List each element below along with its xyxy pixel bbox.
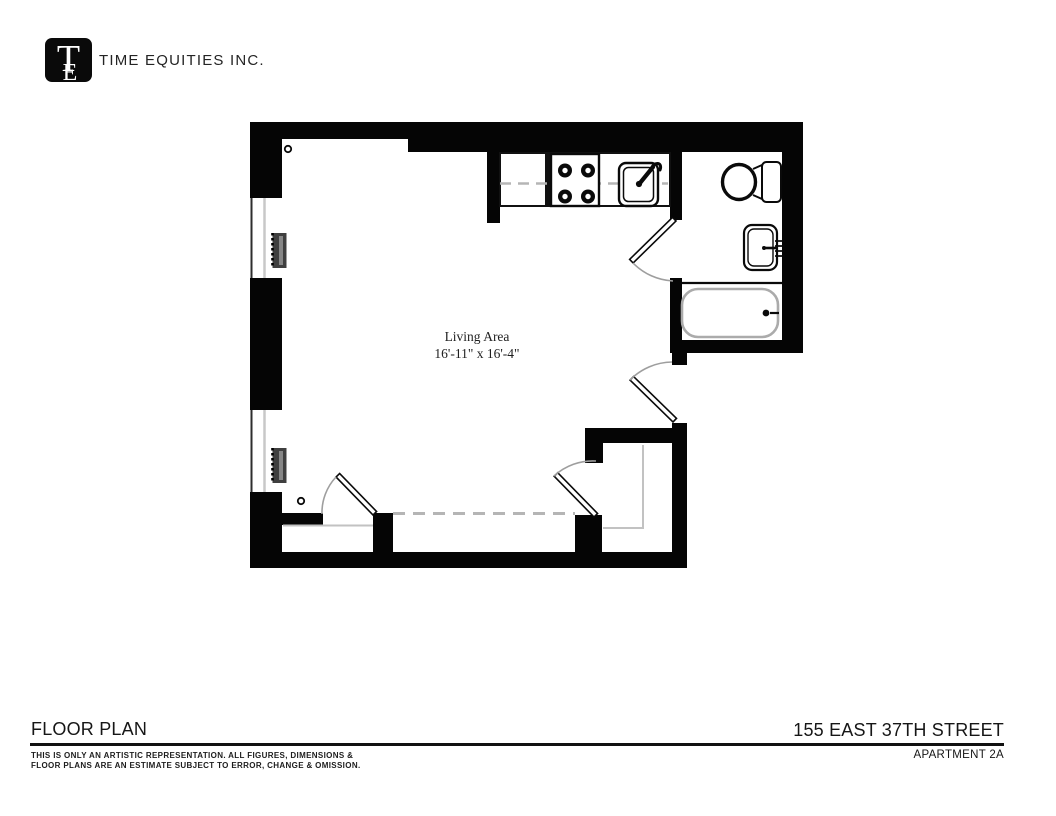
closet-right-interior-line [603, 445, 643, 528]
entry-door-arc [630, 362, 672, 380]
toilet-tank [762, 162, 781, 202]
bathroom-sink [744, 225, 785, 270]
disclaimer-line-2: FLOOR PLANS ARE AN ESTIMATE SUBJECT TO E… [31, 761, 361, 771]
wall-closet-left-pillar [373, 513, 393, 558]
entry-door-leaf [630, 377, 676, 422]
wall-left-upper [250, 122, 282, 198]
kitchen [500, 153, 670, 206]
bathroom-door-leaf [630, 217, 676, 263]
burner-center [585, 194, 590, 199]
disclaimer-line-1: THIS IS ONLY AN ARTISTIC REPRESENTATION.… [31, 751, 361, 761]
room-label: Living Area [445, 329, 510, 344]
kitchen-sink [619, 163, 661, 206]
closet-left-door-arc [322, 477, 336, 514]
closet-right-door-arc [554, 461, 596, 476]
toilet-hinge [753, 195, 762, 199]
wall-closet-right-top [585, 428, 673, 443]
footer-divider-rule [30, 743, 1004, 746]
wall-closet-right-pillar [575, 515, 602, 557]
toilet [723, 162, 782, 202]
burner-center [585, 168, 590, 173]
stove [551, 154, 599, 206]
wall-entry-right [672, 423, 687, 568]
doors [322, 217, 677, 517]
wall-bathroom-left-upper [670, 148, 682, 220]
faucet-base [636, 181, 642, 187]
riser-circle-top [285, 146, 291, 152]
walls [250, 122, 803, 568]
wall-closet-left-jamb [278, 513, 323, 525]
bathroom-door-arc [633, 263, 673, 281]
burner-center [562, 194, 567, 199]
toilet-hinge [753, 165, 762, 169]
toilet-bowl [723, 165, 756, 200]
wall-left-middle [250, 278, 282, 410]
bath-faucet-tip [762, 246, 766, 250]
closet-left-door-leaf [336, 474, 377, 515]
footer-disclaimer: THIS IS ONLY AN ARTISTIC REPRESENTATION.… [31, 751, 361, 771]
riser-circle-bottom [298, 498, 304, 504]
burner-center [562, 168, 567, 173]
wall-top-right [408, 122, 803, 152]
radiator-lower-inner [279, 451, 283, 480]
bathtub [682, 289, 779, 337]
bathroom [682, 162, 785, 337]
wall-entry-top-jamb [672, 340, 687, 365]
footer-title-floor-plan: FLOOR PLAN [31, 719, 147, 740]
wall-kitchen-left [487, 139, 500, 223]
wall-bottom [250, 552, 687, 568]
footer-address: 155 EAST 37TH STREET [793, 720, 1004, 741]
footer-apartment: APARTMENT 2A [913, 749, 1004, 761]
radiator-upper-inner [279, 236, 283, 265]
wall-right-outer [782, 122, 803, 353]
closet-right-door-leaf [554, 473, 597, 517]
floor-plan-drawing: Living Area 16'-11" x 16'-4" [0, 0, 1056, 816]
bathtub-drain [763, 310, 770, 317]
room-dimensions: 16'-11" x 16'-4" [434, 346, 519, 361]
